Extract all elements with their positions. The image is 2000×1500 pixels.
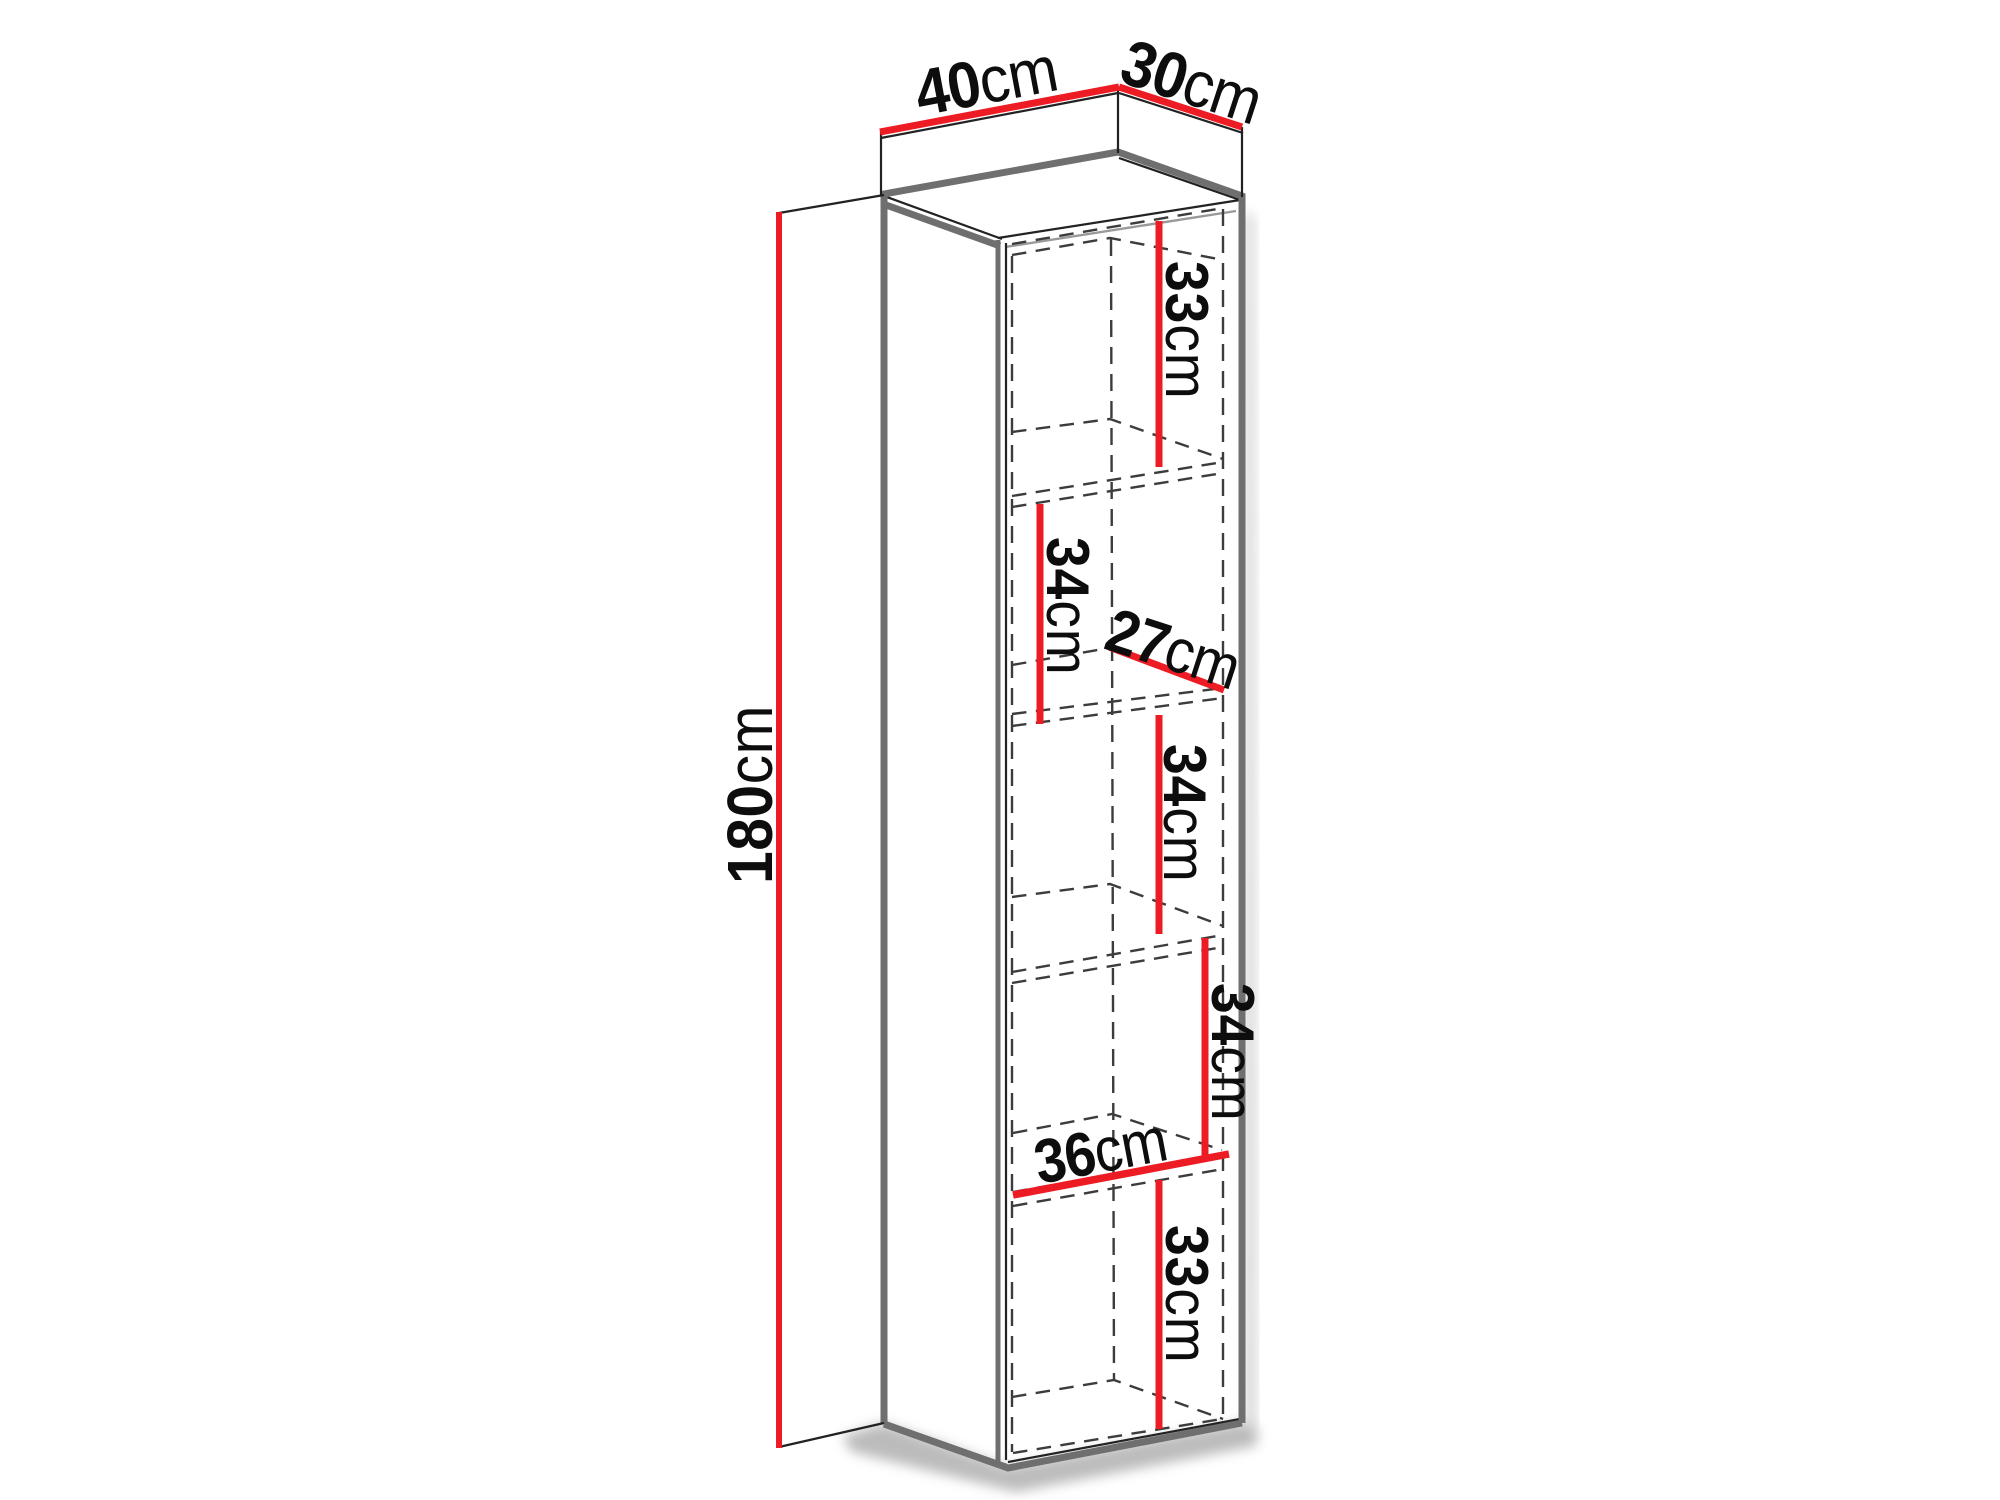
svg-text:180cm: 180cm [715,705,787,884]
svg-text:34cm: 34cm [1198,983,1265,1122]
svg-text:34cm: 34cm [1033,537,1100,676]
svg-text:34cm: 34cm [1150,744,1217,883]
svg-text:33cm: 33cm [1152,261,1219,400]
svg-text:33cm: 33cm [1152,1225,1219,1364]
